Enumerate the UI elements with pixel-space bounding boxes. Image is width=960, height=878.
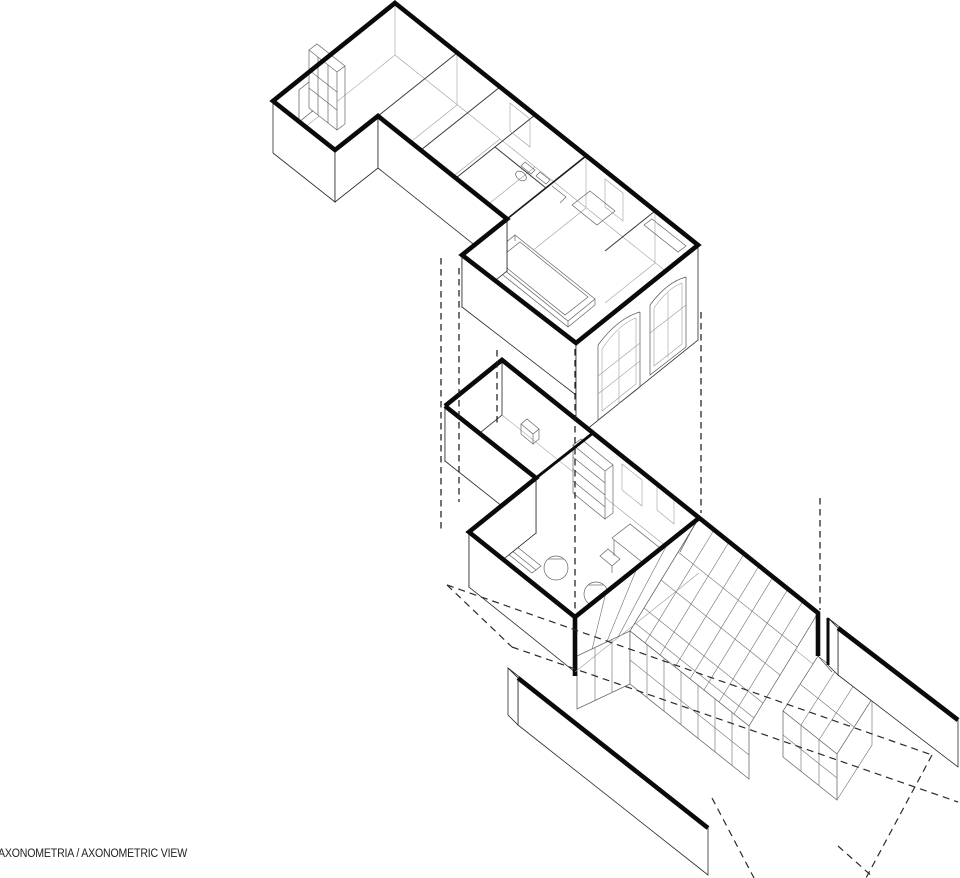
caption-label: AXONOMETRIA / AXONOMETRIC VIEW [0, 848, 187, 860]
axonometric-exploded-view [0, 0, 960, 878]
ground-dashed-front [712, 798, 874, 878]
axonometric-sheet: AXONOMETRIA / AXONOMETRIC VIEW [0, 0, 960, 878]
